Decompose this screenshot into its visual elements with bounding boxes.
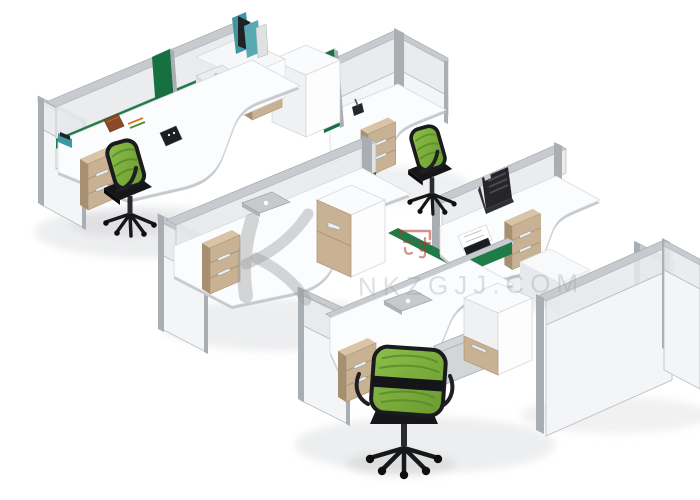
- scene-canvas: NKZGJJ.COM: [0, 0, 700, 500]
- teal-file-holder: [232, 12, 268, 58]
- watermark-text: NKZGJJ.COM: [358, 268, 585, 302]
- green-mesh-chair: [407, 124, 456, 215]
- product-photo-office-workstations: NKZGJJ.COM: [0, 0, 700, 500]
- white-panel: [664, 270, 700, 389]
- storage-cube-beige-side: [317, 185, 385, 277]
